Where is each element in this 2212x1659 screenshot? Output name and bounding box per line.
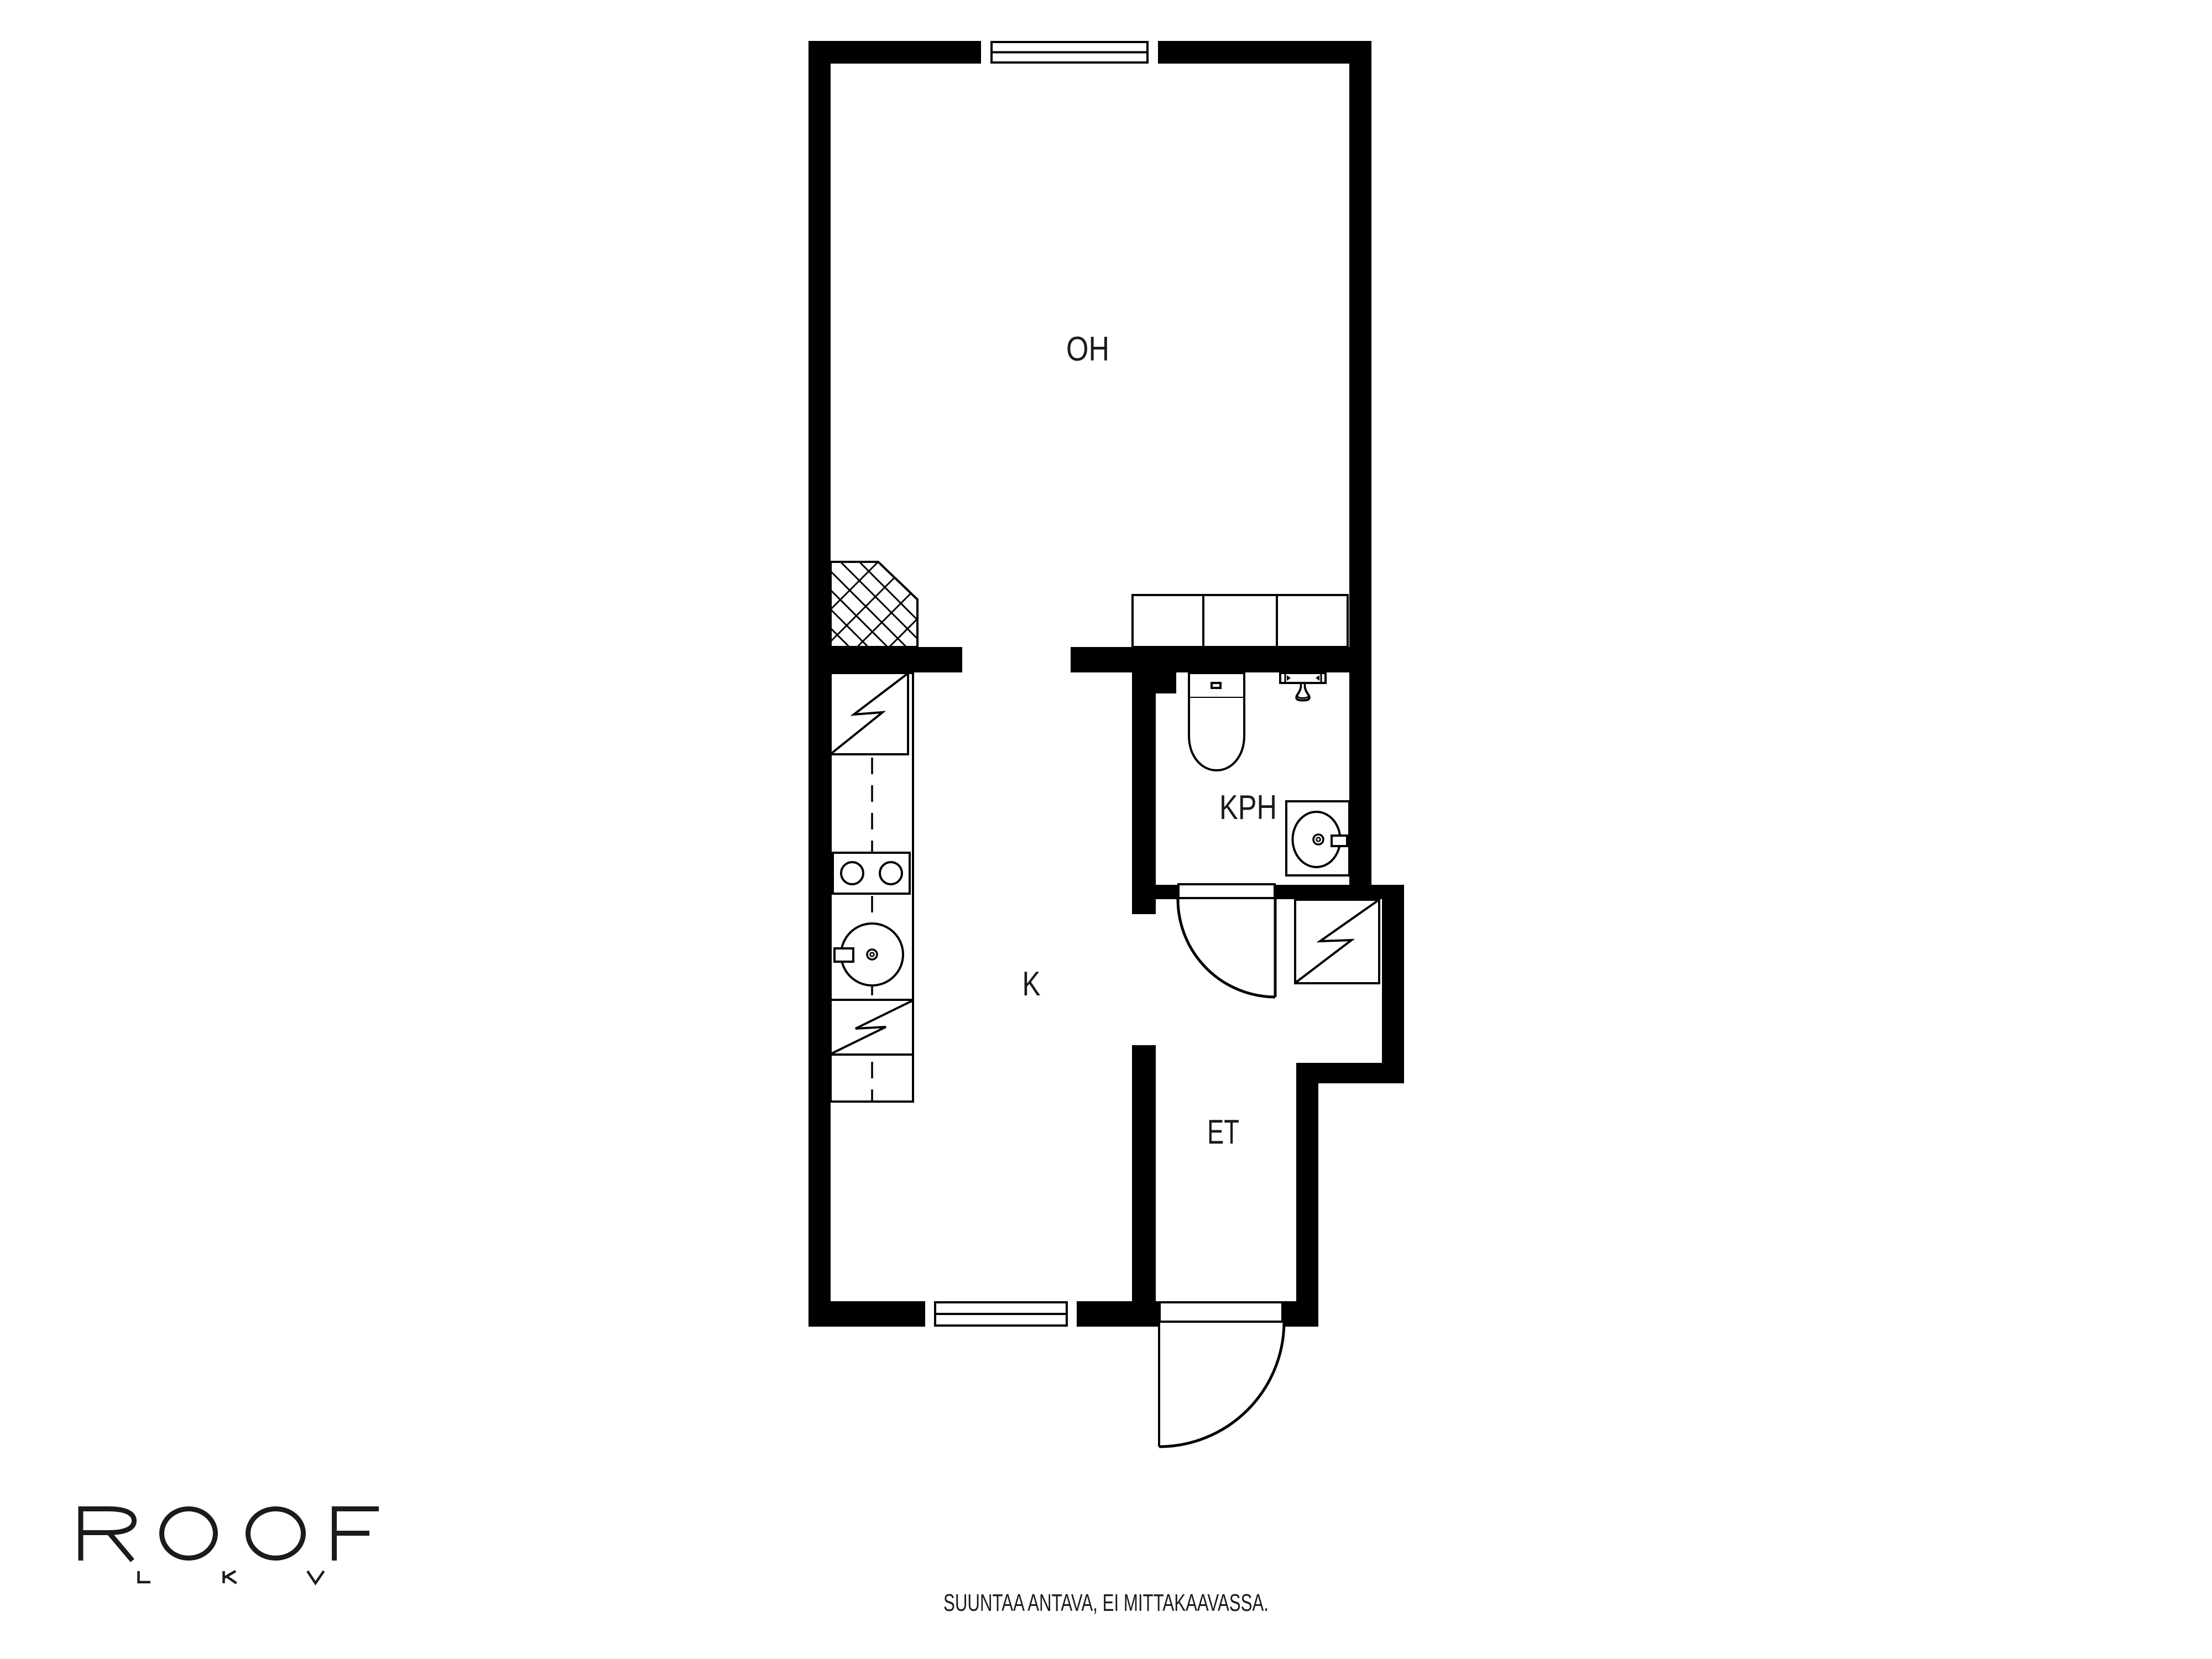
- svg-text:KPH: KPH: [1219, 789, 1277, 827]
- svg-text:K: K: [1022, 965, 1041, 1003]
- svg-text:ET: ET: [1207, 1113, 1239, 1151]
- svg-text:OH: OH: [1066, 330, 1109, 368]
- svg-text:SUUNTAA ANTAVA, EI MITTAKAAVAS: SUUNTAA ANTAVA, EI MITTAKAAVASSA.: [943, 1589, 1269, 1616]
